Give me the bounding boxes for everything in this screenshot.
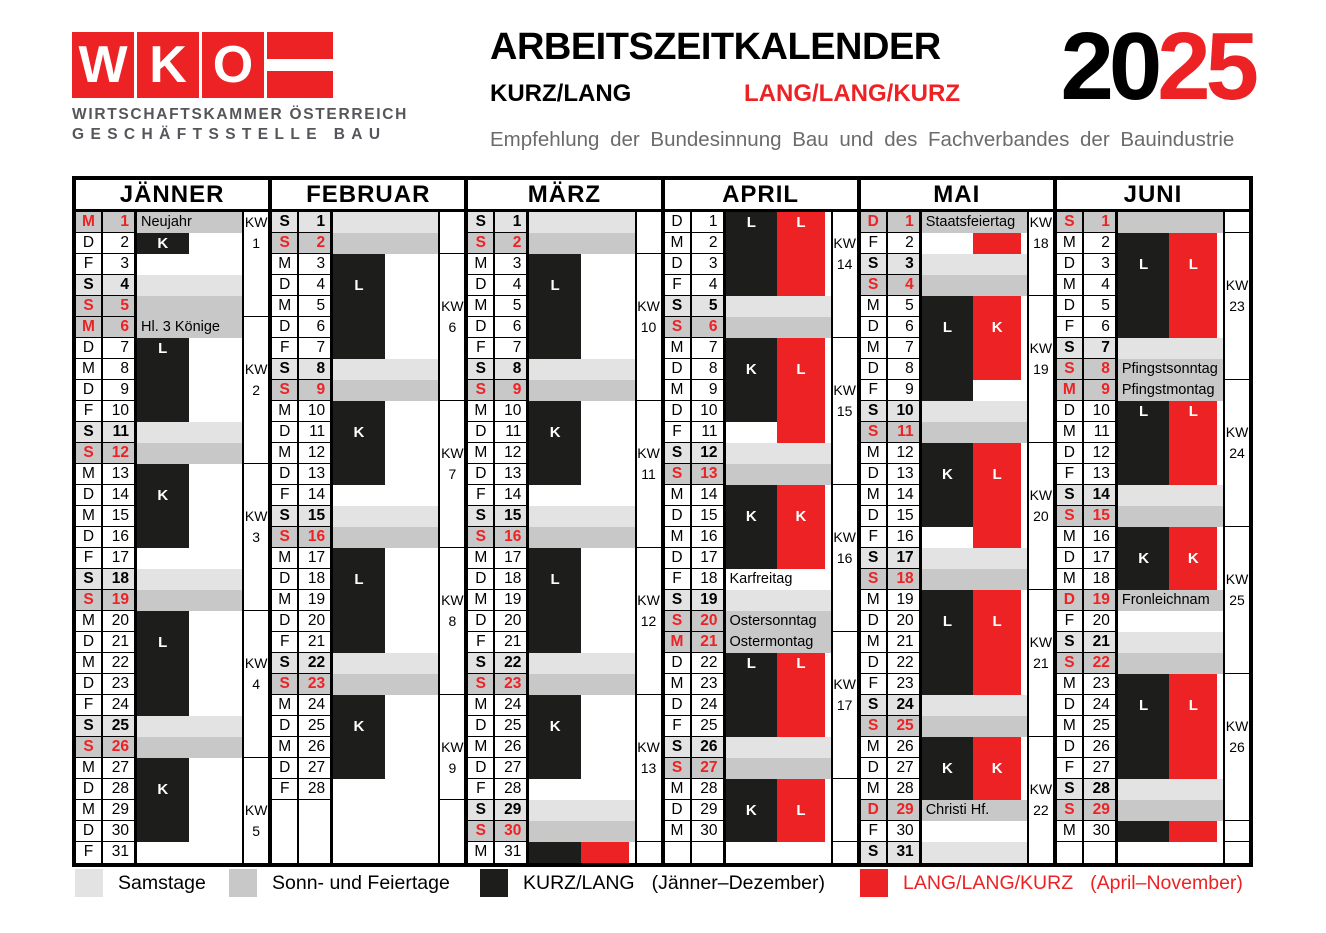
day-letter: F xyxy=(76,254,101,275)
day-number: 20 xyxy=(1084,611,1115,632)
kw-label: KW20 xyxy=(1029,485,1053,527)
day-number: 26 xyxy=(299,737,330,758)
day-number: 7 xyxy=(692,338,723,359)
day-letter: D xyxy=(76,527,101,548)
day-number: 7 xyxy=(103,338,134,359)
day-number: 30 xyxy=(888,821,919,842)
day-number: 21 xyxy=(888,632,919,653)
weekend-row xyxy=(922,275,1027,296)
day-letter: F xyxy=(861,527,886,548)
kurz-lang-block: L xyxy=(1118,674,1170,779)
weekend-row xyxy=(1118,338,1223,359)
legend-note: (Jänner–Dezember) xyxy=(652,872,825,895)
day-letter: D xyxy=(1057,401,1082,422)
day-letter: S xyxy=(1057,800,1082,821)
kurz-lang-block: L xyxy=(529,548,581,653)
kw-week-cell: KW12 xyxy=(637,548,661,695)
day-letter: D xyxy=(861,506,886,527)
holiday-row: Karfreitag xyxy=(726,569,831,590)
weekend-row xyxy=(922,548,1027,569)
day-number: 9 xyxy=(103,380,134,401)
kurz-lang-swatch-icon xyxy=(480,869,508,897)
day-letter: S xyxy=(861,254,886,275)
kurz-lang-block: L xyxy=(726,653,778,737)
weekend-row xyxy=(726,590,831,611)
day-letter: S xyxy=(665,611,690,632)
day-letter: S xyxy=(76,569,101,590)
day-letter: M xyxy=(861,779,886,800)
wko-logo-letter-k: K xyxy=(137,32,199,98)
day-number: 23 xyxy=(888,674,919,695)
block-label: L xyxy=(973,464,1021,485)
weekend-row xyxy=(137,716,242,737)
day-number: 26 xyxy=(692,737,723,758)
day-number: 22 xyxy=(692,653,723,674)
day-letter: S xyxy=(1057,632,1082,653)
day-letter: D xyxy=(1057,296,1082,317)
day-letter: D xyxy=(665,800,690,821)
day-number: 24 xyxy=(1084,695,1115,716)
day-number: 25 xyxy=(495,716,526,737)
day-number: 28 xyxy=(888,779,919,800)
month-body: SSMDMDFSSMDMDFSSMDMDFSSMDMDF 12345678910… xyxy=(272,212,464,863)
day-number: 21 xyxy=(1084,632,1115,653)
day-number: 5 xyxy=(495,296,526,317)
holiday-row: Ostersonntag xyxy=(726,611,831,632)
day-letter: S xyxy=(665,317,690,338)
block-label: L xyxy=(1169,695,1217,716)
wko-logo-tiles: W K O xyxy=(72,32,408,98)
day-letter: D xyxy=(272,716,297,737)
day-letter: D xyxy=(272,275,297,296)
day-number: 10 xyxy=(495,401,526,422)
day-letter: S xyxy=(468,233,493,254)
weekend-row xyxy=(137,275,242,296)
day-number: 1 xyxy=(1084,212,1115,233)
day-letter: D xyxy=(665,359,690,380)
lang-lang-kurz-block xyxy=(581,842,629,863)
day-letter: D xyxy=(1057,443,1082,464)
day-number: 17 xyxy=(692,548,723,569)
kw-week-cell xyxy=(833,779,857,842)
kurz-lang-block: K xyxy=(137,464,189,548)
day-number: 17 xyxy=(888,548,919,569)
day-number: 18 xyxy=(299,569,330,590)
day-number: 15 xyxy=(692,506,723,527)
day-letter: S xyxy=(272,380,297,401)
day-letter: M xyxy=(272,401,297,422)
day-number: 31 xyxy=(888,842,919,863)
lang-lang-kurz-block: L xyxy=(777,212,825,296)
kw-label: KW14 xyxy=(833,233,857,275)
day-number: 12 xyxy=(888,443,919,464)
lang-lang-kurz-block: L xyxy=(777,779,825,842)
day-letter: D xyxy=(76,779,101,800)
block-label: L xyxy=(973,611,1021,632)
day-number: 19 xyxy=(299,590,330,611)
day-number: 19 xyxy=(1084,590,1115,611)
month-title: MÄRZ xyxy=(468,180,660,212)
day-letter: M xyxy=(1057,275,1082,296)
day-letter: M xyxy=(1057,422,1082,443)
day-letter: F xyxy=(861,233,886,254)
sunday-holiday-swatch-icon xyxy=(229,869,257,897)
day-letter: F xyxy=(1057,611,1082,632)
day-letter: D xyxy=(468,569,493,590)
day-letter: F xyxy=(272,338,297,359)
day-letter: M xyxy=(468,443,493,464)
day-letter: S xyxy=(861,401,886,422)
month-column: JUNI SMDMDFSSMDMDFSSMDMDFSSMDMDFSSM 1234… xyxy=(1053,180,1249,863)
day-number: 21 xyxy=(103,632,134,653)
kw-week-cell: KW1 xyxy=(244,212,268,317)
day-letter: S xyxy=(861,842,886,863)
day-number: 15 xyxy=(888,506,919,527)
day-letter: M xyxy=(468,296,493,317)
day-number: 16 xyxy=(692,527,723,548)
kw-week-cell: KW7 xyxy=(440,401,464,548)
kw-week-cell: KW6 xyxy=(440,254,464,401)
day-number: 30 xyxy=(692,821,723,842)
kurz-lang-block: L xyxy=(137,338,189,422)
month-title: APRIL xyxy=(665,180,857,212)
day-letter: F xyxy=(665,422,690,443)
day-letter: F xyxy=(665,569,690,590)
kw-week-cell xyxy=(833,842,857,863)
kw-week-cell: KW14 xyxy=(833,212,857,338)
day-letter-column: SSMDMDFSSMDMDFSSMDMDFSSMDMDFSSM xyxy=(468,212,495,863)
block-label: L xyxy=(922,611,974,632)
month-body: DMDFSSMDMDFSSMDMDFSSMDMDFSSMDM 123456789… xyxy=(665,212,857,863)
day-number: 10 xyxy=(299,401,330,422)
kw-label: KW10 xyxy=(637,296,661,338)
day-number: 7 xyxy=(888,338,919,359)
day-letter: D xyxy=(468,317,493,338)
day-letter: M xyxy=(76,317,101,338)
day-letter: F xyxy=(861,674,886,695)
day-number: 11 xyxy=(888,422,919,443)
day-letter: D xyxy=(468,464,493,485)
day-letter: S xyxy=(272,212,297,233)
day-letter: S xyxy=(1057,653,1082,674)
day-number: 5 xyxy=(299,296,330,317)
block-label: K xyxy=(529,716,581,737)
day-letter: M xyxy=(665,380,690,401)
kw-week-cell: KW22 xyxy=(1029,737,1053,863)
weekend-row xyxy=(529,212,634,233)
kw-week-cell: KW20 xyxy=(1029,443,1053,590)
day-letter: M xyxy=(76,800,101,821)
block-label: L xyxy=(777,800,825,821)
day-letter: M xyxy=(861,338,886,359)
day-number: 18 xyxy=(888,569,919,590)
lang-lang-kurz-block: L xyxy=(777,338,825,443)
day-letter: S xyxy=(861,275,886,296)
weekend-row xyxy=(529,821,634,842)
day-number: 8 xyxy=(103,359,134,380)
kw-label: KW21 xyxy=(1029,632,1053,674)
block-label: L xyxy=(333,275,385,296)
wko-logo: W K O WIRTSCHAFTSKAMMER ÖSTERREICH GESCH… xyxy=(72,32,408,144)
kurz-lang-block: K xyxy=(726,338,778,422)
day-letter: D xyxy=(665,695,690,716)
day-letter: F xyxy=(76,695,101,716)
page-title: ARBEITSZEITKALENDER xyxy=(490,26,941,69)
month-body: SSMDMDFSSMDMDFSSMDMDFSSMDMDFSSM 12345678… xyxy=(468,212,660,863)
kw-week-cell: KW17 xyxy=(833,632,857,779)
kw-column: KW18KW19KW20KW21KW22 xyxy=(1029,212,1053,863)
day-number: 13 xyxy=(888,464,919,485)
kw-week-cell: KW16 xyxy=(833,485,857,632)
day-letter: D xyxy=(1057,254,1082,275)
kw-label: KW11 xyxy=(637,443,661,485)
day-number: 10 xyxy=(692,401,723,422)
day-letter: M xyxy=(272,737,297,758)
day-letter: M xyxy=(861,443,886,464)
day-number: 9 xyxy=(495,380,526,401)
day-number: 20 xyxy=(103,611,134,632)
kw-column: KW6KW7KW8KW9 xyxy=(440,212,464,863)
day-letter: S xyxy=(272,527,297,548)
day-number: 26 xyxy=(888,737,919,758)
day-letter: S xyxy=(76,737,101,758)
block-label: K xyxy=(726,506,778,527)
day-letter: S xyxy=(1057,212,1082,233)
day-letter: D xyxy=(665,401,690,422)
day-letter: M xyxy=(665,527,690,548)
day-letter: M xyxy=(272,443,297,464)
kw-week-cell: KW25 xyxy=(1225,527,1249,674)
holiday-label: Staatsfeiertag xyxy=(922,212,1027,233)
day-letter-column: DMDFSSMDMDFSSMDMDFSSMDMDFSSMDM xyxy=(665,212,692,863)
kw-week-cell xyxy=(440,212,464,254)
day-number: 13 xyxy=(692,464,723,485)
logo-office-name: GESCHÄFTSSTELLE BAU xyxy=(72,126,408,144)
kw-week-cell xyxy=(1225,821,1249,842)
day-number: 18 xyxy=(495,569,526,590)
kw-week-cell: KW19 xyxy=(1029,296,1053,443)
day-number: 25 xyxy=(692,716,723,737)
kurz-lang-block: K xyxy=(529,401,581,485)
day-number: 25 xyxy=(1084,716,1115,737)
day-content-column: PfingstsonntagPfingstmontagFronleichnamL… xyxy=(1118,212,1225,863)
block-label: K xyxy=(726,800,778,821)
day-number: 3 xyxy=(692,254,723,275)
day-number: 4 xyxy=(692,275,723,296)
kw-label: KW3 xyxy=(244,506,268,548)
day-letter: M xyxy=(76,758,101,779)
weekend-row xyxy=(726,464,831,485)
day-letter: F xyxy=(861,380,886,401)
weekend-row xyxy=(333,212,438,233)
day-number: 17 xyxy=(1084,548,1115,569)
lang-lang-kurz-block xyxy=(1169,821,1217,842)
kw-week-cell: KW5 xyxy=(244,758,268,863)
day-content-column: NeujahrHl. 3 KönigeKLKLK xyxy=(137,212,244,863)
day-letter: M xyxy=(76,464,101,485)
day-letter: D xyxy=(861,611,886,632)
kw-label: KW9 xyxy=(440,737,464,779)
day-number: 7 xyxy=(495,338,526,359)
day-number: 8 xyxy=(692,359,723,380)
empty-cell xyxy=(1057,842,1082,863)
day-number: 14 xyxy=(692,485,723,506)
block-label: K xyxy=(333,716,385,737)
kw-week-cell: KW23 xyxy=(1225,233,1249,380)
weekend-row xyxy=(333,233,438,254)
day-number: 2 xyxy=(103,233,134,254)
subtitle-kurz-lang: KURZ/LANG xyxy=(490,80,631,108)
day-number: 28 xyxy=(299,779,330,800)
block-label: K xyxy=(137,233,189,254)
weekend-row xyxy=(529,800,634,821)
legend-item-sundays-holidays: Sonn- und Feiertage xyxy=(229,868,450,898)
day-letter: F xyxy=(1057,758,1082,779)
day-letter: D xyxy=(1057,737,1082,758)
weekend-row xyxy=(333,653,438,674)
day-number: 10 xyxy=(103,401,134,422)
day-number: 22 xyxy=(1084,653,1115,674)
day-number: 14 xyxy=(103,485,134,506)
day-number: 16 xyxy=(1084,527,1115,548)
weekend-row xyxy=(922,254,1027,275)
day-number: 29 xyxy=(692,800,723,821)
day-letter: S xyxy=(76,422,101,443)
lang-lang-kurz-block: K xyxy=(1169,527,1217,590)
day-letter: M xyxy=(1057,380,1082,401)
weekend-row xyxy=(137,737,242,758)
weekend-row xyxy=(1118,212,1223,233)
day-number: 8 xyxy=(1084,359,1115,380)
day-letter: S xyxy=(468,653,493,674)
day-number: 23 xyxy=(1084,674,1115,695)
day-letter: S xyxy=(272,506,297,527)
day-letter: D xyxy=(76,380,101,401)
holiday-row: Staatsfeiertag xyxy=(922,212,1027,233)
day-letter: D xyxy=(468,275,493,296)
day-number: 11 xyxy=(1084,422,1115,443)
legend-item-saturdays: Samstage xyxy=(75,868,206,898)
day-number: 24 xyxy=(692,695,723,716)
day-letter: S xyxy=(272,359,297,380)
kurz-lang-block: L xyxy=(726,212,778,296)
block-label: K xyxy=(1118,548,1170,569)
block-label: L xyxy=(529,569,581,590)
kw-week-cell: KW3 xyxy=(244,464,268,611)
year-black-part: 20 xyxy=(1060,13,1157,120)
day-number: 15 xyxy=(495,506,526,527)
weekend-row xyxy=(1118,800,1223,821)
kw-week-cell: KW15 xyxy=(833,338,857,485)
kw-label: KW16 xyxy=(833,527,857,569)
day-letter: S xyxy=(76,443,101,464)
day-number: 3 xyxy=(495,254,526,275)
saturday-swatch-icon xyxy=(75,869,103,897)
day-number: 30 xyxy=(1084,821,1115,842)
day-number: 1 xyxy=(103,212,134,233)
kw-week-cell xyxy=(637,842,661,863)
day-number: 16 xyxy=(495,527,526,548)
kurz-lang-block: K xyxy=(922,737,974,800)
day-number: 3 xyxy=(103,254,134,275)
day-letter-column: SMDMDFSSMDMDFSSMDMDFSSMDMDFSSM xyxy=(1057,212,1084,863)
legend-item-kurz-lang: KURZ/LANG (Jänner–Dezember) xyxy=(480,868,825,898)
day-letter: F xyxy=(861,821,886,842)
day-letter: D xyxy=(861,464,886,485)
day-content-column: StaatsfeiertagChristi Hf.LKLKKLLK xyxy=(922,212,1029,863)
day-number: 12 xyxy=(692,443,723,464)
kurz-lang-block: K xyxy=(922,443,974,527)
day-letter: M xyxy=(272,590,297,611)
day-letter: M xyxy=(1057,233,1082,254)
kw-week-cell: KW10 xyxy=(637,254,661,401)
day-letter: D xyxy=(76,338,101,359)
day-number: 4 xyxy=(103,275,134,296)
day-letter: M xyxy=(665,485,690,506)
day-letter: F xyxy=(468,338,493,359)
kurz-lang-block xyxy=(529,842,581,863)
subtitle-lang-lang-kurz: LANG/LANG/KURZ xyxy=(744,80,960,108)
day-number: 2 xyxy=(299,233,330,254)
month-column: APRIL DMDFSSMDMDFSSMDMDFSSMDMDFSSMDM 123… xyxy=(661,180,857,863)
kw-label: KW25 xyxy=(1225,569,1249,611)
day-number: 7 xyxy=(1084,338,1115,359)
day-letter: M xyxy=(272,254,297,275)
kw-label: KW22 xyxy=(1029,779,1053,821)
kw-label: KW13 xyxy=(637,737,661,779)
weekend-row xyxy=(529,359,634,380)
day-letter: D xyxy=(468,422,493,443)
day-number: 30 xyxy=(495,821,526,842)
kw-label: KW12 xyxy=(637,590,661,632)
block-label: L xyxy=(777,212,825,233)
lang-lang-kurz-block: L xyxy=(973,590,1021,695)
kw-label: KW7 xyxy=(440,443,464,485)
empty-cell xyxy=(272,800,297,863)
day-letter: M xyxy=(665,779,690,800)
day-letter: S xyxy=(76,590,101,611)
day-letter: S xyxy=(468,821,493,842)
day-number: 15 xyxy=(1084,506,1115,527)
day-letter: S xyxy=(665,464,690,485)
lang-lang-kurz-block: K xyxy=(973,296,1021,380)
day-letter: S xyxy=(468,674,493,695)
kurz-lang-block: K xyxy=(137,758,189,842)
day-number: 22 xyxy=(299,653,330,674)
day-letter: M xyxy=(468,695,493,716)
day-letter: M xyxy=(468,254,493,275)
kw-column: KW10KW11KW12KW13 xyxy=(637,212,661,863)
day-number: 3 xyxy=(888,254,919,275)
day-letter: S xyxy=(272,653,297,674)
day-number: 23 xyxy=(103,674,134,695)
day-letter: S xyxy=(1057,485,1082,506)
weekend-row xyxy=(726,758,831,779)
day-letter: D xyxy=(272,464,297,485)
kw-week-cell xyxy=(440,800,464,863)
holiday-label: Pfingstsonntag xyxy=(1118,359,1223,380)
legend-label: Samstage xyxy=(118,872,206,895)
day-number: 24 xyxy=(299,695,330,716)
day-letter: S xyxy=(468,359,493,380)
kurz-lang-block: K xyxy=(333,401,385,485)
weekend-row xyxy=(333,380,438,401)
day-number: 21 xyxy=(495,632,526,653)
kurz-lang-block: L xyxy=(922,296,974,401)
weekend-row xyxy=(726,317,831,338)
holiday-label: Karfreitag xyxy=(726,569,831,590)
day-number: 22 xyxy=(103,653,134,674)
